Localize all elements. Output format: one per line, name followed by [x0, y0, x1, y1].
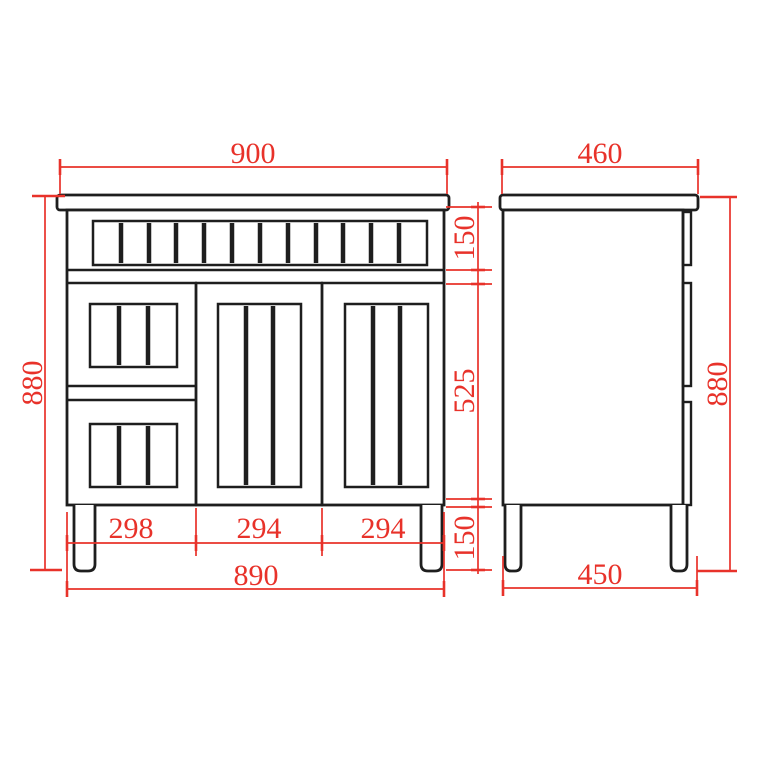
front-left-leg: [74, 505, 95, 571]
side-left-leg: [505, 505, 521, 571]
dimension-value: 460: [578, 137, 623, 170]
dimension-value: 294: [237, 512, 282, 545]
dimension-value: 890: [234, 559, 279, 592]
dimension-value: 900: [231, 137, 276, 170]
dim-front-height-chain: 150 525 150: [446, 202, 492, 574]
dim-front-carcass-width: 890: [67, 556, 444, 597]
front-counter-top: [57, 195, 449, 210]
dimension-value: 150: [448, 216, 481, 261]
side-view: [500, 195, 698, 571]
dim-side-overall-height: 880: [697, 197, 737, 571]
dimension-value: 450: [578, 558, 623, 591]
dimension-value: 880: [16, 361, 49, 406]
dim-side-carcass-depth: 450: [503, 556, 697, 596]
dim-front-overall-height: 880: [16, 196, 65, 570]
dim-side-overall-depth: 460: [502, 137, 698, 194]
vanity-dimension-drawing: 900 880 150 525 150: [0, 0, 768, 768]
dimension-value: 525: [448, 369, 481, 414]
front-cabinet-body: [67, 210, 444, 505]
dimension-value: 298: [109, 512, 154, 545]
dimension-value: 880: [701, 362, 734, 407]
dim-front-width-chain: 298 294 294: [67, 508, 444, 556]
side-counter-top: [500, 195, 698, 210]
side-cabinet-body: [503, 210, 683, 505]
dimension-value: 150: [448, 516, 481, 561]
dimension-value: 294: [361, 512, 406, 545]
side-right-leg: [671, 505, 687, 571]
dim-front-overall-width: 900: [60, 137, 447, 194]
technical-drawing-canvas: 900 880 150 525 150: [0, 0, 768, 768]
front-right-leg: [421, 505, 442, 571]
